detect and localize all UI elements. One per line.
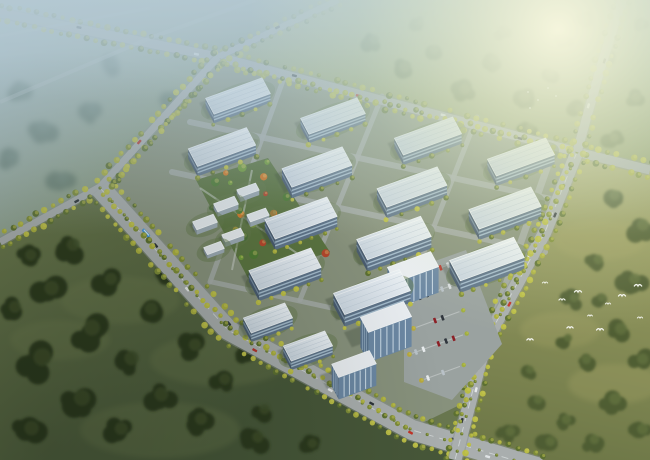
aerial-scene-canvas [0, 0, 650, 460]
atmosphere-overlays [0, 0, 650, 460]
industrial-park-aerial-rendering [0, 0, 650, 460]
sun-glow [0, 0, 650, 460]
